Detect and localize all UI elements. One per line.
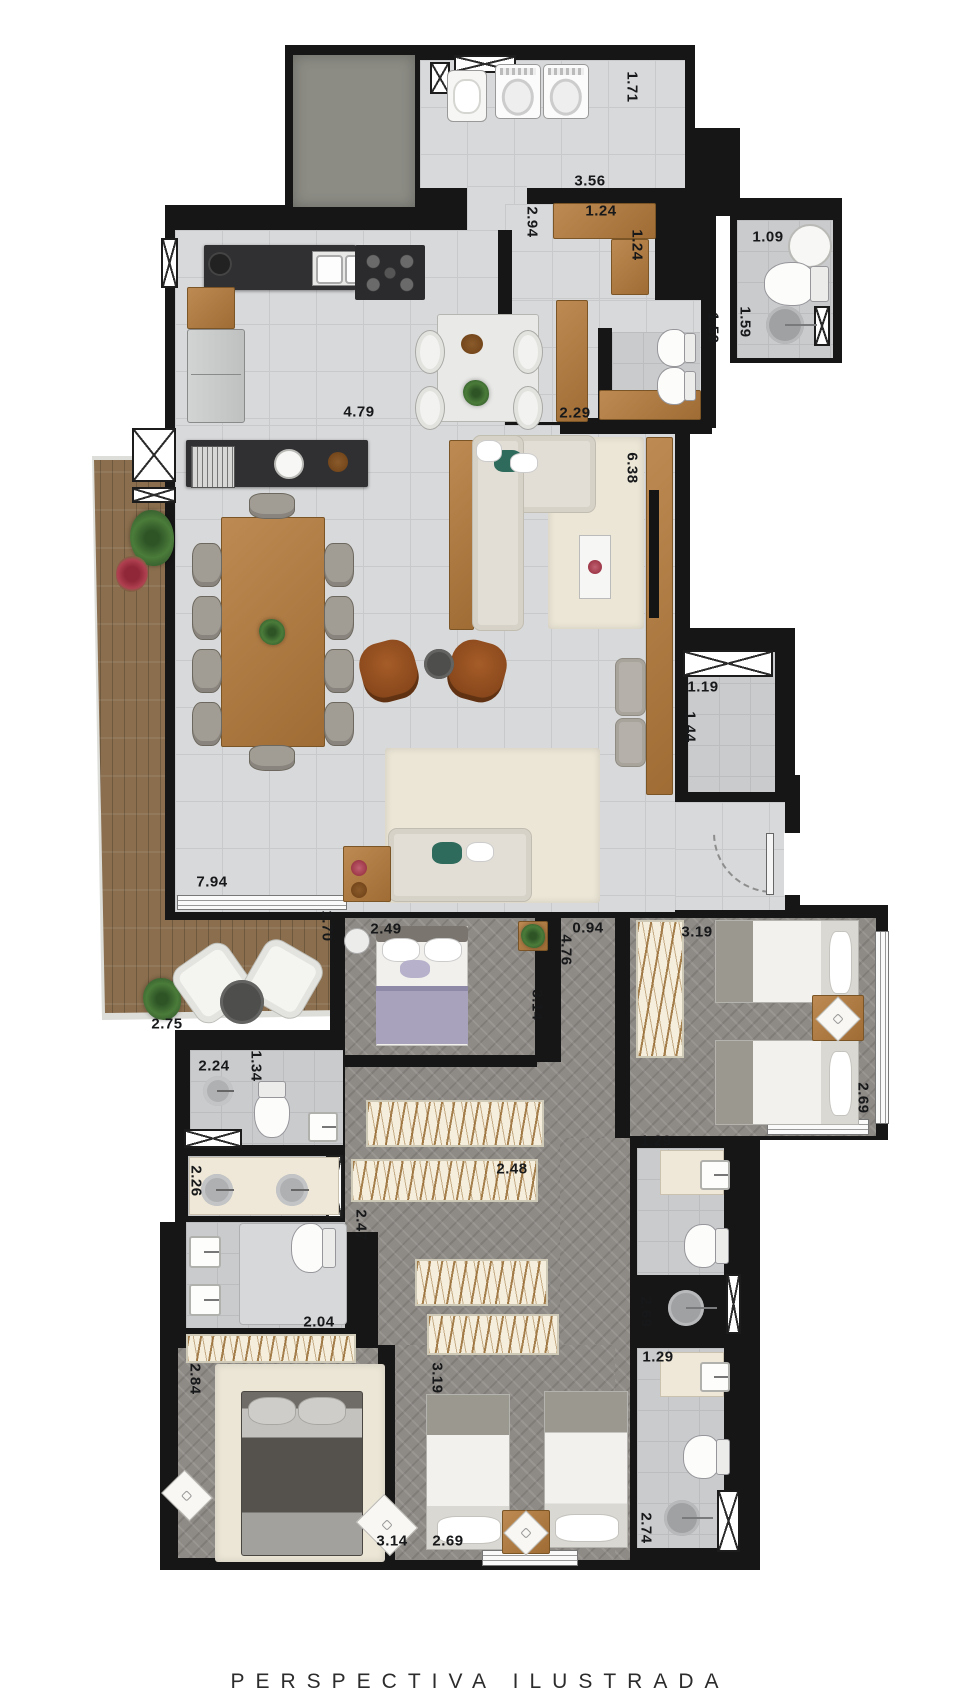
entry-console [343, 846, 391, 902]
dining-chair [249, 493, 295, 519]
sofa-front [388, 828, 532, 902]
bath-sink [700, 1160, 730, 1190]
dimension-label: 7.94 [196, 874, 227, 891]
laundry-sink [447, 70, 487, 122]
dimension-label: 1.19 [687, 679, 718, 696]
dimension-label: 4.79 [343, 404, 374, 421]
dimension-label: 3.14 [376, 1533, 407, 1550]
dimension-label: 2.69 [855, 1082, 872, 1113]
dimension-label: 4.76 [558, 934, 575, 965]
dimension-label: 1.59 [737, 306, 754, 337]
bath-sink [308, 1112, 338, 1142]
dimension-label: 2.24 [198, 1058, 229, 1075]
dimension-label: 3.14 [529, 989, 546, 1020]
tv [649, 490, 659, 618]
washing-machine [543, 64, 589, 119]
pillow [298, 1397, 346, 1425]
bed-twin [715, 1040, 859, 1125]
service-toilet [657, 329, 689, 367]
dining-chair [324, 543, 354, 587]
floor-plan: PERSPECTIVA ILUSTRADA 1.713.561.241.242.… [0, 0, 960, 1706]
dining-chair [324, 596, 354, 640]
caption-perspectiva: PERSPECTIVA ILUSTRADA [0, 1670, 960, 1694]
dining-chair [192, 543, 222, 587]
dimension-label: 3.56 [574, 173, 605, 190]
shaft-vent-box [717, 1490, 740, 1552]
dimension-label: 1.59 [705, 312, 722, 343]
terrace-table [220, 980, 264, 1024]
wardrobe [366, 1100, 544, 1147]
console-decor [351, 860, 367, 876]
dining-chair [324, 702, 354, 746]
dimension-label: 2.49 [370, 921, 401, 938]
wall [345, 1232, 378, 1345]
table-plant [463, 380, 489, 406]
wardrobe [636, 920, 684, 1058]
toilet [291, 1223, 327, 1273]
bedside-plant [521, 924, 545, 948]
ottoman [615, 658, 646, 716]
shaft-vent-box [161, 238, 178, 288]
bath-sink [189, 1284, 221, 1316]
dimension-label: 2.94 [524, 206, 541, 237]
dimension-label: 3.19 [681, 924, 712, 941]
entry-door-opening [784, 833, 802, 895]
dimension-label: 2.26 [188, 1165, 205, 1196]
shaft-vent-box [184, 1129, 242, 1148]
bath-sink [189, 1236, 221, 1268]
shaft-vent-box [814, 306, 830, 346]
dimension-label: 1.24 [629, 229, 646, 260]
dining-chair [192, 596, 222, 640]
dimension-label: 1.09 [752, 229, 783, 246]
kitchen-chair [415, 330, 445, 374]
blanket [376, 986, 468, 1044]
side-table [424, 649, 454, 679]
dimension-label: 6.38 [624, 452, 641, 483]
dimension-label: 3.19 [429, 1362, 446, 1393]
dining-chair [192, 649, 222, 693]
pillow [248, 1397, 296, 1425]
kitchen-chair [513, 386, 543, 430]
pillow [424, 938, 462, 962]
dimension-label: 1.71 [624, 71, 641, 102]
centerpiece-plant [259, 619, 285, 645]
dimension-label: 2.48 [496, 1161, 527, 1178]
dining-chair [324, 649, 354, 693]
wardrobe [186, 1334, 356, 1363]
dimension-label: 2.29 [559, 405, 590, 422]
wc-shower-drain [766, 306, 804, 344]
pillow [382, 938, 420, 962]
shaft-vent-box [726, 1274, 741, 1334]
shower-drain [668, 1290, 704, 1326]
flower-vase [588, 560, 602, 574]
toilet [684, 1224, 720, 1268]
bath-sink-round [201, 1174, 233, 1206]
wardrobe [415, 1259, 548, 1306]
dimension-label: 2.69 [432, 1533, 463, 1550]
dimension-label: 1.24 [585, 203, 616, 220]
dimension-label: 2.84 [187, 1363, 204, 1394]
fruit-bowl [461, 334, 483, 354]
dimension-label: 1.44 [682, 711, 699, 742]
dimension-label: 1.70 [319, 910, 336, 941]
kitchen-cabinet [187, 287, 235, 329]
toilet [254, 1092, 290, 1138]
dining-chair [249, 745, 295, 771]
wardrobe [427, 1314, 559, 1355]
sofa-cushion [466, 842, 494, 862]
sofa-cushion [432, 842, 462, 864]
storage-room-floor [293, 55, 415, 207]
kitchen-chair [513, 330, 543, 374]
bed-twin [544, 1391, 628, 1548]
dimension-label: 1.34 [248, 1050, 265, 1081]
console-decor [351, 882, 367, 898]
dimension-label: 1.29 [640, 1133, 671, 1150]
dimension-label: 2.04 [303, 1314, 334, 1331]
dimension-label: 1.29 [642, 1349, 673, 1366]
washing-machine [495, 64, 541, 119]
bath-sink-round [276, 1174, 308, 1206]
wall [345, 1055, 537, 1067]
bar-sink [274, 449, 304, 479]
cushion [400, 960, 430, 978]
bar-decor [328, 452, 348, 472]
shower-drain [664, 1500, 700, 1536]
sofa-console [449, 440, 474, 630]
dimension-label: 0.94 [572, 920, 603, 937]
window-sill [875, 931, 889, 1124]
ac-grille [191, 446, 235, 488]
shaft-vent-box [132, 487, 176, 503]
dimension-label: 2.47 [353, 1209, 370, 1240]
sofa-cushion [510, 453, 538, 473]
shaft-vent-box [132, 428, 176, 482]
bath-sink-round [203, 1076, 233, 1106]
entry-door-leaf [766, 833, 774, 895]
dimension-label: 2.69 [638, 1296, 655, 1327]
dimension-label: 2.75 [151, 1016, 182, 1033]
toilet [683, 1435, 721, 1479]
dimension-label: 2.74 [638, 1512, 655, 1543]
refrigerator [187, 329, 245, 423]
kitchen-chair [415, 386, 445, 430]
service-bidet [657, 367, 689, 405]
dining-chair [192, 702, 222, 746]
coffee-machine [208, 252, 232, 276]
window-sill [177, 895, 347, 910]
shaft-vent-box [683, 650, 773, 677]
ottoman [615, 718, 646, 767]
sofa-cushion [476, 440, 502, 462]
wc-toilet [764, 262, 816, 306]
bedside-table [344, 928, 370, 954]
cooktop [355, 245, 425, 300]
bath-sink [700, 1362, 730, 1392]
bed-twin [426, 1394, 510, 1550]
bed-twin [715, 920, 859, 1003]
